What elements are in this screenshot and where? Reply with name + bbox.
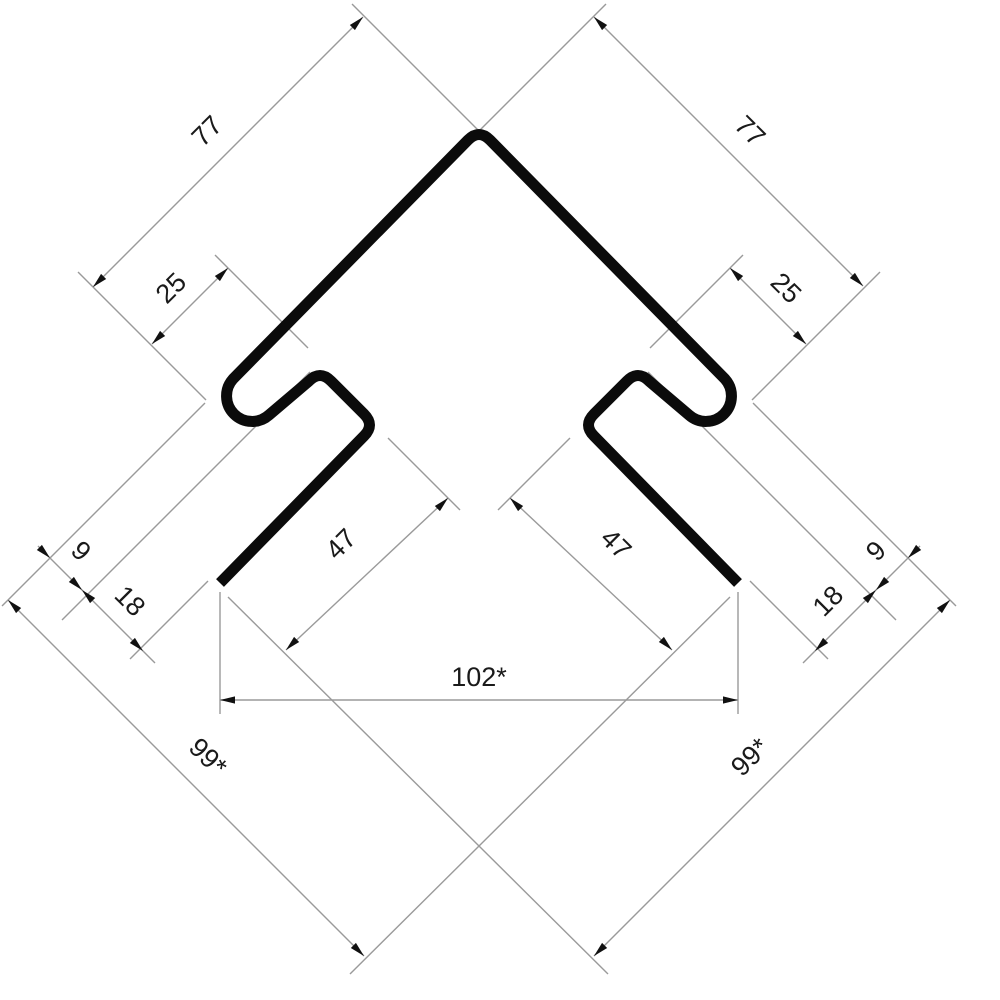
dim-label-9-left: 9 [65, 535, 97, 567]
extension-lines [2, 4, 956, 974]
dim-label-77-right: 77 [729, 110, 771, 152]
ext-apex-left [352, 4, 479, 131]
dimline-77-left [93, 17, 363, 287]
dim-label-99-left: 99* [183, 732, 233, 782]
dimline-99-right [594, 600, 950, 956]
ext-hook-corner-right [650, 255, 743, 348]
ext-legline-left [2, 403, 205, 606]
dim-label-99-right: 99* [725, 732, 775, 782]
dimline-77-right [594, 17, 863, 286]
profile-outline [220, 135, 738, 584]
dim-label-25-right: 25 [765, 267, 807, 309]
dimline-99-left [8, 600, 364, 956]
dimline-47-right [510, 498, 672, 650]
dimline-47-left [286, 498, 448, 650]
dim-label-25-left: 25 [150, 267, 192, 309]
dim-label-9-right: 9 [860, 535, 892, 567]
dim-label-18-right: 18 [807, 580, 849, 622]
ext-legend-right-diag [350, 597, 730, 974]
arrow-102-right [723, 696, 738, 703]
arrow-102-left [220, 696, 235, 703]
dimension-labels: 77 77 25 25 47 47 9 9 18 18 102* 99* 99* [65, 110, 892, 783]
ext-hook-corner-left [215, 255, 308, 348]
arrowheads [5, 14, 952, 958]
dim-label-47-left: 47 [320, 523, 362, 565]
ext-apex-right [479, 4, 606, 131]
ext-legend-left-diag [228, 597, 608, 974]
ext-legline-right [753, 403, 956, 606]
dimension-lines [8, 17, 950, 956]
dim-label-47-right: 47 [595, 523, 637, 565]
dim-label-77-left: 77 [186, 110, 228, 152]
ext-flange-corner-left [388, 438, 460, 510]
ext-flange-corner-right [498, 438, 570, 510]
technical-drawing-canvas: 77 77 25 25 47 47 9 9 18 18 102* 99* 99* [0, 0, 1000, 1000]
dim-label-18-left: 18 [109, 580, 151, 622]
profile-drawing: 77 77 25 25 47 47 9 9 18 18 102* 99* 99* [0, 0, 1000, 1000]
dim-label-102: 102* [451, 662, 507, 692]
